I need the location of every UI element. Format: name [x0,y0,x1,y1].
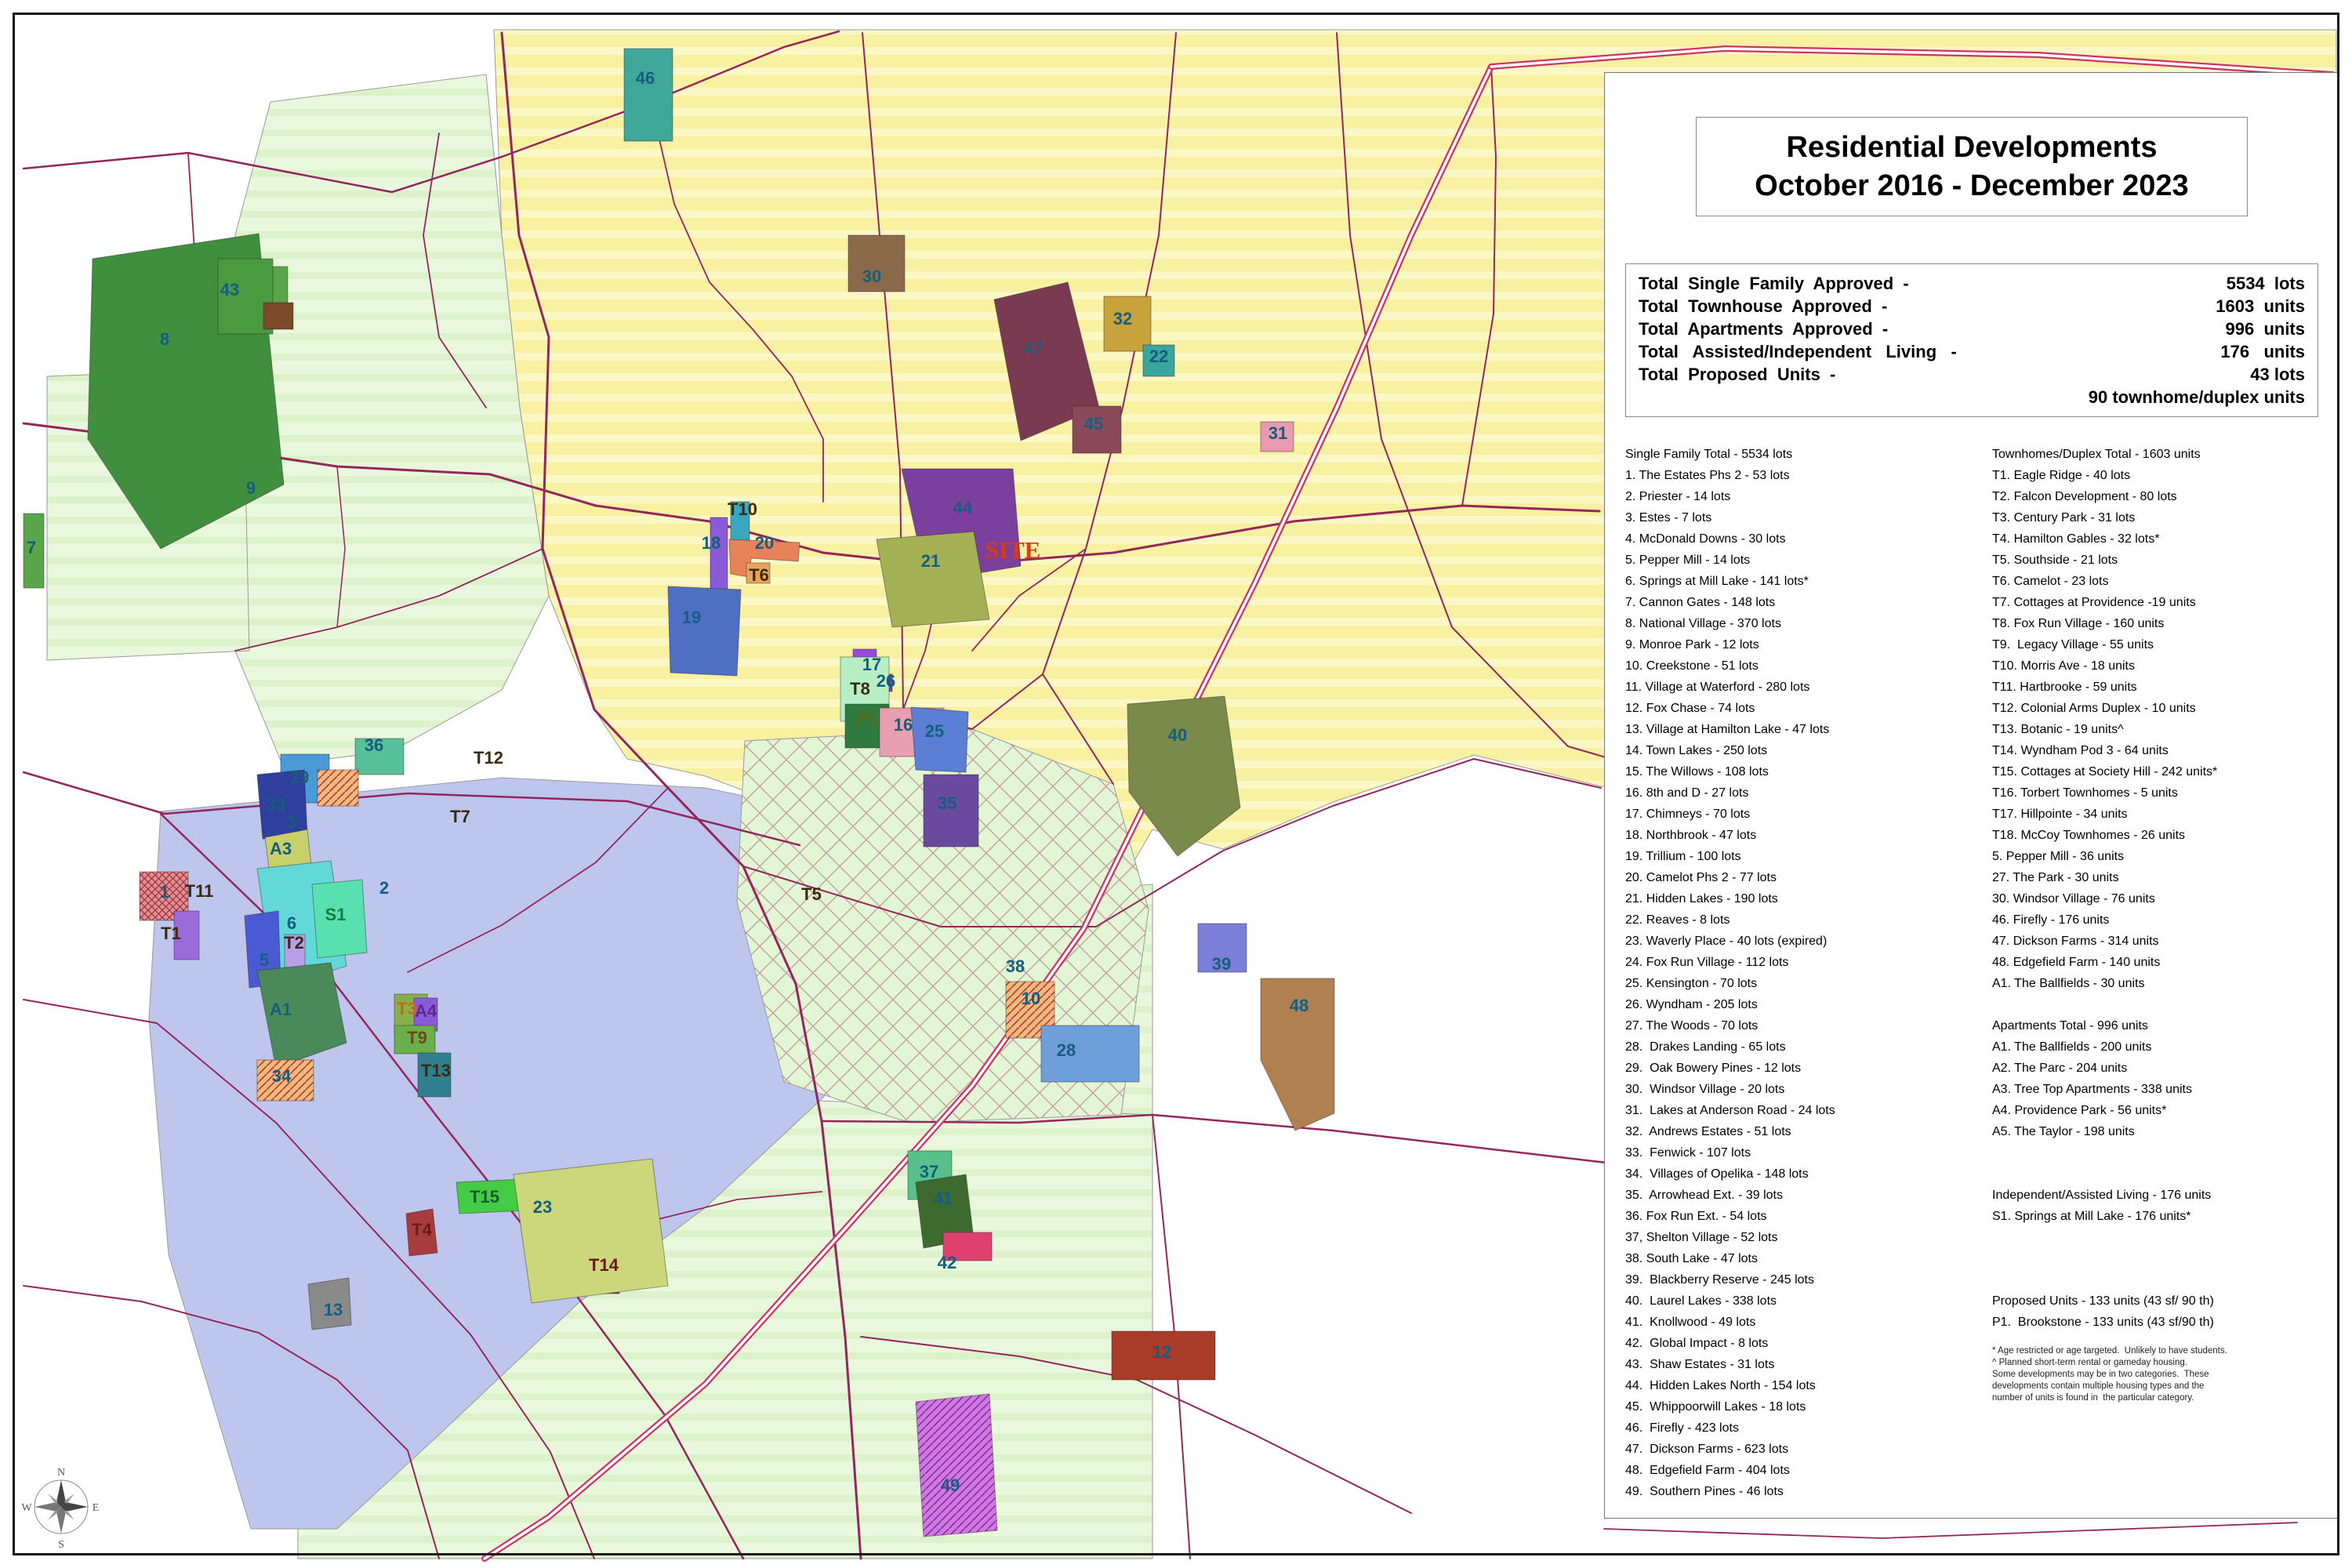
map-label: 44 [953,498,973,517]
list-line: 5. Pepper Mill - 14 lots [1625,550,1992,571]
list-line: 11. Village at Waterford - 280 lots [1625,677,1992,698]
totals-row: 90 townhome/duplex units [1639,386,2305,408]
map-label: 23 [533,1197,552,1217]
list-line: 23. Waverly Place - 40 lots (expired) [1625,931,1992,952]
list-line: T17. Hillpointe - 34 units [1992,804,2318,825]
map-label: 2 [379,878,389,898]
list-line: 2. Priester - 14 lots [1625,486,1992,507]
list-line: Proposed Units - 133 units (43 sf/ 90 th… [1992,1290,2318,1312]
list-line: 40. Laurel Lakes - 338 lots [1625,1290,1992,1312]
list-line: 28. Drakes Landing - 65 lots [1625,1036,1992,1058]
list-line: A3. Tree Top Apartments - 338 units [1992,1079,2318,1100]
map-label: 36 [365,735,383,755]
development-patch [877,532,989,627]
map-label: 39 [1212,954,1231,974]
development-patch [916,1394,997,1537]
development-patch [710,517,728,590]
list-line [1992,1248,2318,1269]
list-line: 6. Springs at Mill Lake - 141 lots* [1625,571,1992,592]
list-line: T6. Camelot - 23 lots [1992,571,2318,592]
list-line: Townhomes/Duplex Total - 1603 units [1992,444,2318,465]
totals-label: Total Townhouse Approved - [1639,295,1887,318]
totals-row: Total Townhouse Approved -1603 units [1639,295,2305,318]
map-label: T4 [412,1220,432,1240]
svg-text:N: N [57,1467,65,1479]
list-line: T13. Botanic - 19 units^ [1992,719,2318,740]
map-label: 37 [920,1162,938,1181]
list-line: A4. Providence Park - 56 units* [1992,1100,2318,1121]
totals-label: Total Apartments Approved - [1639,318,1888,340]
list-line: T4. Hamilton Gables - 32 lots* [1992,528,2318,550]
list-line: T3. Century Park - 31 lots [1992,507,2318,528]
development-patch [514,1159,668,1303]
map-label: 7 [27,538,36,557]
list-line: 45. Whippoorwill Lakes - 18 lots [1625,1396,1992,1417]
totals-box: Total Single Family Approved -5534 lotsT… [1625,263,2318,417]
list-line: 46. Firefly - 176 units [1992,909,2318,931]
map-label: 21 [921,551,940,571]
totals-row: Total Assisted/Independent Living -176 u… [1639,340,2305,363]
list-line: A1. The Ballfields - 30 units [1992,973,2318,994]
map-label: T5 [801,884,822,904]
list-line: 38. South Lake - 47 lots [1625,1248,1992,1269]
development-patch [624,49,673,141]
map-label: S1 [325,905,347,924]
list-line: T7. Cottages at Providence -19 units [1992,592,2318,613]
map-label: T8 [850,679,870,699]
map-label: 29 [290,768,309,787]
map-label: 9 [246,478,256,498]
map-label: T15 [470,1187,499,1207]
list-line: A1. The Ballfields - 200 units [1992,1036,2318,1058]
list-line: 30. Windsor Village - 76 units [1992,888,2318,909]
list-line [1992,994,2318,1015]
list-line: P1. Brookstone - 133 units (43 sf/90 th) [1992,1312,2318,1333]
list-line: 8. National Village - 370 lots [1625,613,1992,634]
totals-row: Total Apartments Approved -996 units [1639,318,2305,340]
footnote-line: developments contain multiple housing ty… [1992,1381,2318,1392]
list-line: T15. Cottages at Society Hill - 242 unit… [1992,761,2318,782]
list-line [1992,1163,2318,1185]
list-line: 30. Windsor Village - 20 lots [1625,1079,1992,1100]
list-line: 3. Estes - 7 lots [1625,507,1992,528]
totals-row: Total Single Family Approved -5534 lots [1639,272,2305,295]
map-label: 38 [1006,956,1025,976]
list-line: 44. Hidden Lakes North - 154 lots [1625,1375,1992,1396]
legend-columns: Single Family Total - 5534 lots1. The Es… [1625,444,2318,1502]
map-label: T7 [450,807,470,826]
totals-value: 176 units [2220,340,2305,363]
footnote-line: ^ Planned short-term rental or gameday h… [1992,1357,2318,1369]
list-line: T10. Morris Ave - 18 units [1992,655,2318,677]
list-line: 4. McDonald Downs - 30 lots [1625,528,1992,550]
list-line: 17. Chimneys - 70 lots [1625,804,1992,825]
footnote-line: number of units is found in the particul… [1992,1392,2318,1404]
map-label: T9 [407,1028,427,1047]
totals-value: 90 townhome/duplex units [2089,386,2305,408]
list-line [1992,1227,2318,1248]
map-label: 40 [1168,725,1187,745]
map-label: 20 [755,533,774,553]
totals-value: 43 lots [2250,363,2305,386]
map-label: T2 [284,933,304,953]
list-line: 39. Blackberry Reserve - 245 lots [1625,1269,1992,1290]
list-line: 1. The Estates Phs 2 - 53 lots [1625,465,1992,486]
list-line: 18. Northbrook - 47 lots [1625,825,1992,846]
map-label: 42 [938,1253,956,1272]
list-line: 25. Kensington - 70 lots [1625,973,1992,994]
map-label: 1 [160,882,169,902]
map-label: T6 [749,565,769,585]
list-line: 22. Reaves - 8 lots [1625,909,1992,931]
map-label: 6 [287,913,296,933]
list-line [1992,1142,2318,1163]
map-label: 3 [287,812,296,832]
map-label: A1 [270,1000,292,1019]
totals-label: Total Proposed Units - [1639,363,1835,386]
map-label: T11 [185,881,214,901]
map-label: 47 [1024,339,1043,358]
footnotes: * Age restricted or age targeted. Unlike… [1992,1345,2318,1404]
map-label: 13 [324,1300,343,1319]
map-label: 46 [636,68,655,88]
list-line: 48. Edgefield Farm - 404 lots [1625,1460,1992,1481]
map-label: T12 [474,748,503,768]
development-patch [263,303,293,329]
development-patch [318,770,358,806]
list-line: T14. Wyndham Pod 3 - 64 units [1992,740,2318,761]
list-line: Apartments Total - 996 units [1992,1015,2318,1036]
map-label: A3 [270,839,292,858]
map-label: 10 [1022,989,1040,1008]
svg-text:E: E [93,1502,100,1514]
list-line: 21. Hidden Lakes - 190 lots [1625,888,1992,909]
list-line: 13. Village at Hamilton Lake - 47 lots [1625,719,1992,740]
svg-text:S: S [58,1539,64,1551]
list-line: 24. Fox Run Village - 112 lots [1625,952,1992,973]
list-line: 43. Shaw Estates - 31 lots [1625,1354,1992,1375]
map-label: 12 [1152,1342,1171,1362]
list-line: 41. Knollwood - 49 lots [1625,1312,1992,1333]
list-line: S1. Springs at Mill Lake - 176 units* [1992,1206,2318,1227]
development-patch [668,586,741,676]
map-label: 31 [1269,423,1287,443]
list-line: 35. Arrowhead Ext. - 39 lots [1625,1185,1992,1206]
townhomes-apartments-list: Townhomes/Duplex Total - 1603 unitsT1. E… [1992,444,2318,1502]
list-line: A2. The Parc - 204 units [1992,1058,2318,1079]
list-line: 34. Villages of Opelika - 148 lots [1625,1163,1992,1185]
totals-value: 996 units [2226,318,2305,340]
map-label: 34 [272,1066,292,1086]
map-label: 28 [1057,1040,1076,1060]
list-line: 15. The Willows - 108 lots [1625,761,1992,782]
map-label: T14 [589,1255,619,1275]
list-line: 36. Fox Run Ext. - 54 lots [1625,1206,1992,1227]
map-label: 49 [941,1475,960,1495]
list-line: T2. Falcon Development - 80 lots [1992,486,2318,507]
list-line: A5. The Taylor - 198 units [1992,1121,2318,1142]
list-line: T18. McCoy Townhomes - 26 units [1992,825,2318,846]
development-patch [1041,1025,1139,1082]
map-label: 19 [682,608,701,627]
list-line: 14. Town Lakes - 250 lots [1625,740,1992,761]
legend-title-line1: Residential Developments [1701,129,2242,167]
list-line: 37, Shelton Village - 52 lots [1625,1227,1992,1248]
map-label: P1 [856,710,877,729]
single-family-list: Single Family Total - 5534 lots1. The Es… [1625,444,1992,1502]
map-label: 41 [934,1189,953,1208]
list-line: 49. Southern Pines - 46 lots [1625,1481,1992,1502]
totals-label: Total Single Family Approved - [1639,272,1909,295]
svg-text:W: W [21,1502,32,1514]
map-label: T10 [728,499,757,519]
list-line: 33. Fenwick - 107 lots [1625,1142,1992,1163]
map-label: 18 [702,533,720,553]
legend-title-box: Residential Developments October 2016 - … [1696,117,2248,216]
legend-title-line2: October 2016 - December 2023 [1701,167,2242,205]
list-line: 12. Fox Chase - 74 lots [1625,698,1992,719]
map-label: T13 [421,1061,451,1080]
map-label: 35 [938,793,956,813]
list-line: 7. Cannon Gates - 148 lots [1625,592,1992,613]
totals-value: 1603 units [2216,295,2305,318]
map-label: 30 [862,267,881,286]
map-label: T1 [161,924,181,943]
legend-panel: Residential Developments October 2016 - … [1604,72,2339,1519]
footnote-line: * Age restricted or age targeted. Unlike… [1992,1345,2318,1357]
list-line: T12. Colonial Arms Duplex - 10 units [1992,698,2318,719]
list-line: 31. Lakes at Anderson Road - 24 lots [1625,1100,1992,1121]
totals-value: 5534 lots [2227,272,2305,295]
list-line: 32. Andrews Estates - 51 lots [1625,1121,1992,1142]
list-line: T9. Legacy Village - 55 units [1992,634,2318,655]
list-line: T16. Torbert Townhomes - 5 units [1992,782,2318,804]
list-line: Single Family Total - 5534 lots [1625,444,1992,465]
list-line: T1. Eagle Ridge - 40 lots [1992,465,2318,486]
map-label: 22 [1149,347,1168,366]
map-label: 5 [260,950,269,970]
list-line: 27. The Park - 30 units [1992,867,2318,888]
totals-row: Total Proposed Units -43 lots [1639,363,2305,386]
site-label: SITE [985,536,1041,564]
map-label: 32 [1113,309,1132,328]
map-label: 16 [894,715,913,735]
list-line: 16. 8th and D - 27 lots [1625,782,1992,804]
list-line: 20. Camelot Phs 2 - 77 lots [1625,867,1992,888]
list-line: T8. Fox Run Village - 160 units [1992,613,2318,634]
list-line: Independent/Assisted Living - 176 units [1992,1185,2318,1206]
footnote-line: Some developments may be in two categori… [1992,1369,2318,1381]
list-line: 9. Monroe Park - 12 lots [1625,634,1992,655]
list-line: 47. Dickson Farms - 314 units [1992,931,2318,952]
list-line: 26. Wyndham - 205 lots [1625,994,1992,1015]
list-line: 48. Edgefield Farm - 140 units [1992,952,2318,973]
map-label: 26 [877,671,895,691]
map-label: 25 [925,721,944,741]
list-line [1992,1269,2318,1290]
totals-label: Total Assisted/Independent Living - [1639,340,1957,363]
list-line: T5. Southside - 21 lots [1992,550,2318,571]
list-line: 47. Dickson Farms - 623 lots [1625,1439,1992,1460]
list-line: 29. Oak Bowery Pines - 12 lots [1625,1058,1992,1079]
list-line: 10. Creekstone - 51 lots [1625,655,1992,677]
list-line: 46. Firefly - 423 lots [1625,1417,1992,1439]
map-label: 45 [1084,414,1103,434]
map-label: 43 [220,280,239,299]
map-label: A4 [415,1001,437,1021]
list-line: 27. The Woods - 70 lots [1625,1015,1992,1036]
list-line: 19. Trillium - 100 lots [1625,846,1992,867]
list-line: 5. Pepper Mill - 36 units [1992,846,2318,867]
map-label: 48 [1290,996,1308,1015]
map-label: 33 [267,795,285,815]
list-line: 42. Global Impact - 8 lots [1625,1333,1992,1354]
list-line: T11. Hartbrooke - 59 units [1992,677,2318,698]
map-label: 8 [160,329,169,349]
